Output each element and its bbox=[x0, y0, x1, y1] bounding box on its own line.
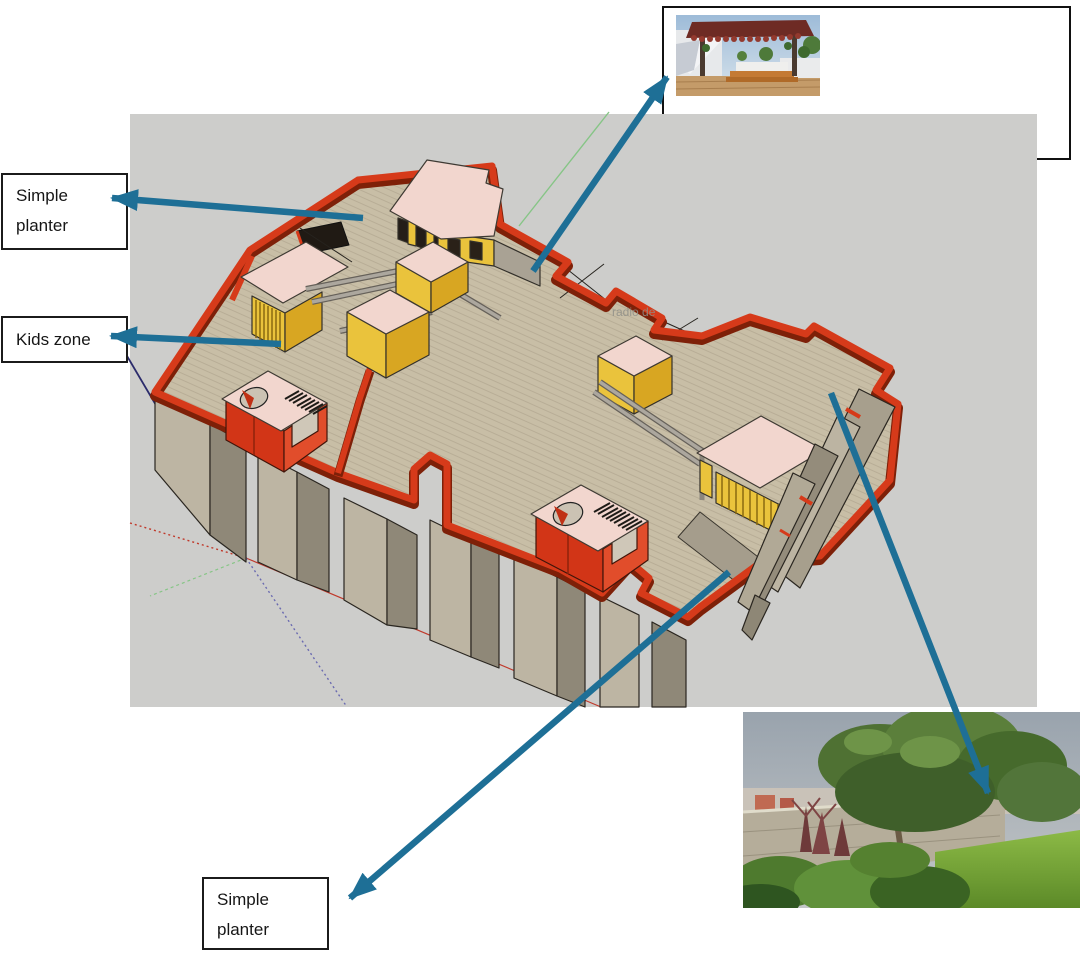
rooftop-garden-photo bbox=[720, 704, 1080, 920]
annotation-box-simple-planter-bottom: Simple planter bbox=[202, 877, 329, 950]
pergola-seating-photo bbox=[676, 15, 821, 96]
annotation-box-simple-planter-top: Simple planter bbox=[1, 173, 128, 250]
slide-canvas: radio de bbox=[0, 0, 1080, 959]
label-line: Kids zone bbox=[16, 325, 91, 355]
label-line: Simple bbox=[16, 181, 122, 211]
label-line: planter bbox=[16, 211, 122, 241]
label-line: Simple bbox=[217, 885, 323, 915]
sketchup-viewport: radio de bbox=[0, 0, 1080, 959]
label-line: planter bbox=[217, 915, 323, 945]
annotation-box-kids-zone: Kids zone bbox=[1, 316, 128, 363]
viewport-watermark: radio de bbox=[612, 305, 656, 319]
